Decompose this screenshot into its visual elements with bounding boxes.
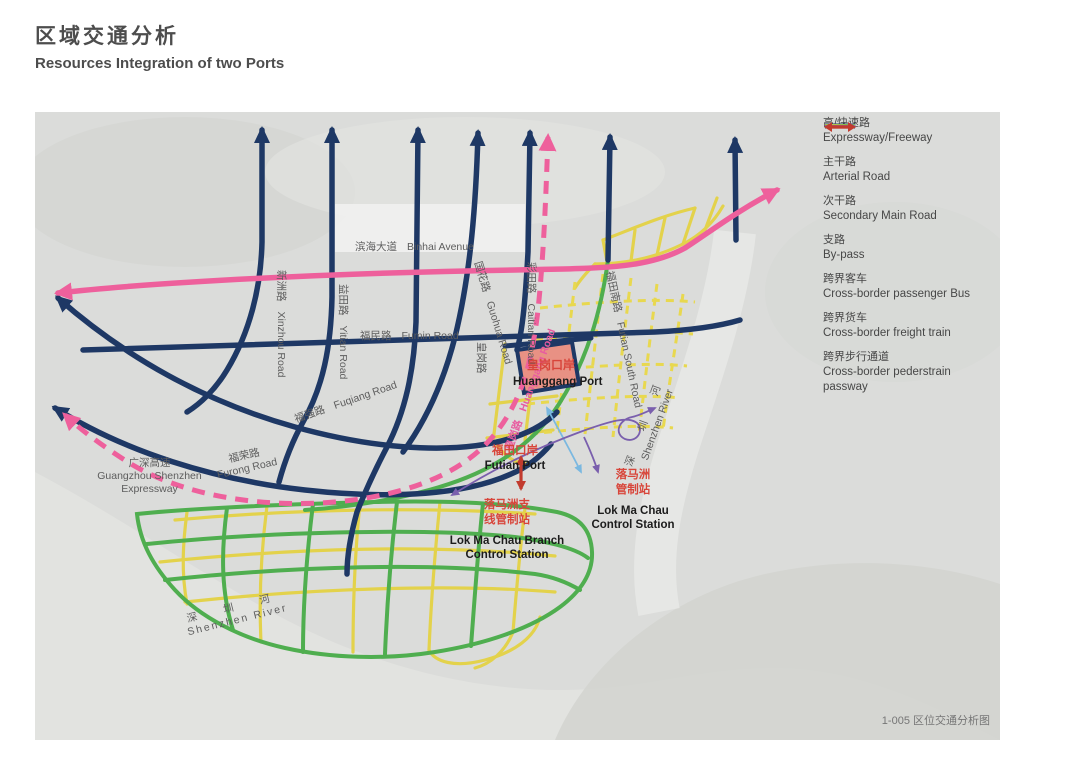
label-lok-ma-chau: 落马洲 管制站 Lok Ma Chau Control Station: [563, 468, 703, 532]
label-caitian-road: 彩田路Caitian Road: [524, 262, 537, 364]
label-huanggang-port-zh: 皇岗口岸: [527, 358, 575, 373]
label-yitian-road: 益田路Yitian Road: [336, 284, 349, 379]
legend-item-arterial: 主干路 Arterial Road: [823, 155, 999, 185]
page-title: 区域交通分析: [35, 20, 284, 50]
traffic-analysis-map: 滨海大道Binhai Avenue 新洲路Xinzhou Road 益田路Yit…: [35, 112, 1000, 740]
pedestrian-passway-double-arrow-icon: [823, 121, 857, 133]
map-caption: 1-005 区位交通分析图: [882, 712, 990, 728]
legend-item-passenger-bus: 跨界客车 Cross-border passenger Bus: [823, 272, 999, 302]
label-binhai-avenue: 滨海大道Binhai Avenue: [355, 241, 474, 254]
label-fumin-road: 福民路Fumin Road: [360, 330, 459, 343]
label-xinzhou-road: 新洲路Xinzhou Road: [274, 270, 287, 377]
page-subtitle: Resources Integration of two Ports: [35, 55, 284, 72]
legend-item-freight-train: 跨界货车 Cross-border freight train: [823, 311, 999, 341]
page-header: 区域交通分析 Resources Integration of two Port…: [35, 20, 284, 72]
legend-item-pedestrian-passway: 跨界步行通道 Cross-border pederstrain passway: [823, 350, 999, 395]
label-gz-expressway: 广深高速 Guangzhou Shenzhen Expressway: [67, 457, 232, 496]
legend-item-secondary: 次干路 Secondary Main Road: [823, 194, 999, 224]
map-legend: 高/快速路 Expressway/Freeway 主干路 Arterial Ro…: [823, 116, 999, 404]
label-huanggang-port-en: Huanggang Port: [513, 375, 602, 389]
label-huanggang-road-gray: 皇岗路: [474, 342, 487, 374]
legend-item-bypass: 支路 By-pass: [823, 233, 999, 263]
